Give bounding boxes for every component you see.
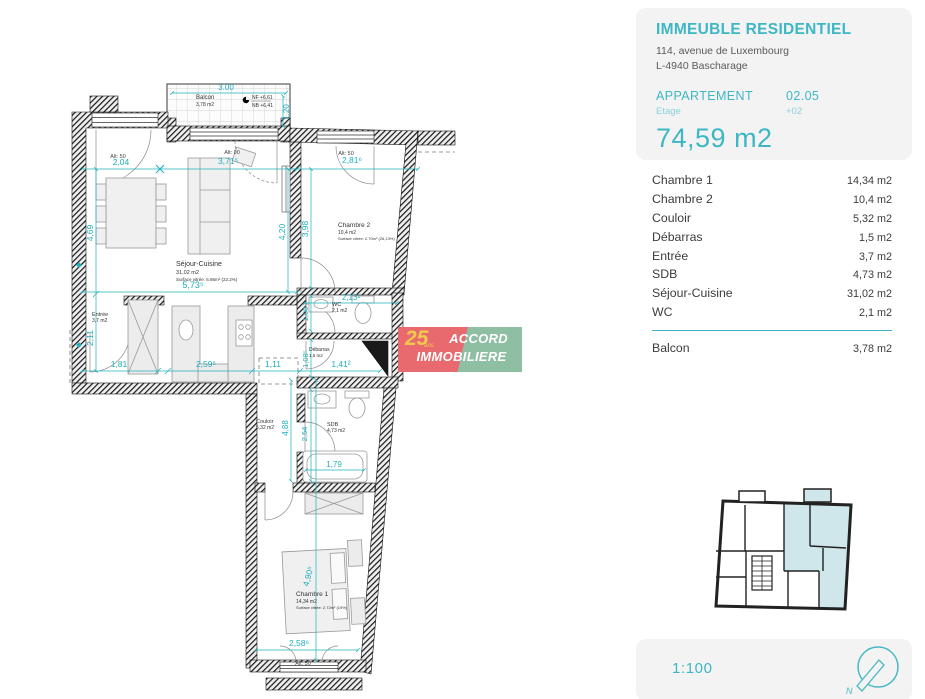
room-row: Chambre 1 14,34 m2 [652,171,892,190]
dim-label: 3,98 [300,220,310,237]
room-row: Séjour-Cuisine 31,02 m2 [652,284,892,303]
total-area: 74,59 m2 [656,123,896,154]
room-label-debarras: Débarras 1,5 m2 [309,347,330,358]
room-label-sdb: SDB 4,73 m2 [327,422,345,434]
svg-text:1,5 m2: 1,5 m2 [309,353,323,358]
room-list: Chambre 1 14,34 m2 Chambre 2 10,4 m2 Cou… [652,171,892,357]
svg-text:Surface vitrée: 2.72m² (19%): Surface vitrée: 2.72m² (19%) [296,605,348,610]
north-letter: N [846,686,853,696]
svg-text:Chambre 1: Chambre 1 [296,591,329,598]
svg-text:Surface vitrée: 6.86m² (22.2%): Surface vitrée: 6.86m² (22.2%) [176,277,238,282]
level-nb: NB +6,41 [252,103,273,109]
svg-text:3,7 m2: 3,7 m2 [92,318,108,324]
dim-label: 1,41² [331,359,351,369]
keyplan-stairs [752,556,772,590]
key-plan [636,480,912,628]
dim-label: 2,58⁶ [289,638,309,648]
room-row: Entrée 3,7 m2 [652,246,892,265]
room-label-balcon: Balcon 3,78 m2 [196,95,214,108]
svg-text:4,73 m2: 4,73 m2 [327,428,345,434]
floor-plan: 3.00 1,20 2,04 3,71⁵ 2,81⁶ 4,69 2,11 4,2… [0,0,630,699]
logo-line1: ACCORD [404,330,519,348]
dim-label: 3.00 [218,83,234,92]
svg-text:3,78 m2: 3,78 m2 [196,102,214,108]
scale-card: 1:100 N [636,639,912,699]
address-line2: L-4940 Bascharage [656,59,896,74]
dim-label: 2,59⁵ [196,359,216,369]
svg-text:Surface vitrée: 2.70m² (26,13%: Surface vitrée: 2.70m² (26,13%) [338,236,395,241]
alt-label: Alt: 50 [338,151,354,157]
room-row: Débarras 1,5 m2 [652,227,892,246]
room-label-entree: Entrée 3,7 m2 [92,312,108,324]
room-label-chambre2: Chambre 2 10,4 m2 Surface vitrée: 2.70m²… [338,222,395,241]
room-label-couloir: Couloir 5,32 m2 [256,419,274,431]
scale-label: 1:100 [672,660,713,677]
svg-text:Balcon: Balcon [196,95,214,101]
dim-label: 1,81 [111,359,128,369]
apartment-label: APPARTEMENT [656,89,786,103]
dim-label: 4,88 [281,420,290,436]
alt-label: Alt: 50 [110,154,126,160]
room-row: Couloir 5,32 m2 [652,209,892,228]
dim-label: 2,11 [85,330,95,346]
keyplan-balcony [739,491,765,502]
apartment-number: 02.05 [786,89,819,103]
room-label-sejour: Séjour-Cuisine 31,02 m2 Surface vitrée: … [176,261,238,282]
agency-logo: 25 ans ACCORD IMMOBILIERE [398,327,522,372]
floor-label: Etage [656,106,786,117]
svg-text:Chambre 2: Chambre 2 [338,222,371,229]
dim-label: 1,00 [301,307,310,322]
room-row: WC 2,1 m2 [652,302,892,321]
room-row: Chambre 2 10,4 m2 [652,190,892,209]
svg-text:2,1 m2: 2,1 m2 [332,308,348,314]
north-compass-icon: N [840,640,912,699]
room-row: SDB 4,73 m2 [652,265,892,284]
alt-label: Alt: 00 [224,150,240,156]
level-nf: NF +6,61 [252,95,273,101]
page: 3.00 1,20 2,04 3,71⁵ 2,81⁶ 4,69 2,11 4,2… [0,0,925,699]
dim-label: 2,54 [300,427,309,442]
keyplan-balcony-highlight [804,489,831,502]
list-divider [652,330,892,331]
alt-label: Alt: 50 [295,661,311,667]
logo-line2: IMMOBILIERE [404,348,519,366]
header-card: IMMEUBLE RESIDENTIEL 114, avenue de Luxe… [636,8,912,160]
info-panel: IMMEUBLE RESIDENTIEL 114, avenue de Luxe… [636,0,912,699]
dim-label: 1,79 [326,460,342,469]
logo-text: ACCORD IMMOBILIERE [404,330,519,365]
floor-value: +02 [786,106,802,117]
room-label-wc: WC 2,1 m2 [332,302,348,314]
svg-text:Séjour-Cuisine: Séjour-Cuisine [176,261,222,268]
dim-label: 3,71⁵ [218,156,238,166]
building-title: IMMEUBLE RESIDENTIEL [656,21,896,39]
dim-label: 1,20 [282,104,291,120]
dim-label: 1,11 [265,359,281,369]
balcony-row: Balcon 3,78 m2 [652,338,892,357]
svg-text:31,02 m2: 31,02 m2 [176,270,199,276]
svg-text:5,32 m2: 5,32 m2 [256,425,274,431]
dim-label: 4,20 [277,223,287,240]
address-line1: 114, avenue de Luxembourg [656,44,896,59]
dim-label: 2,13¹ [342,293,361,302]
dim-label: 4,69 [85,224,95,241]
highlighted-apartment [784,503,851,608]
